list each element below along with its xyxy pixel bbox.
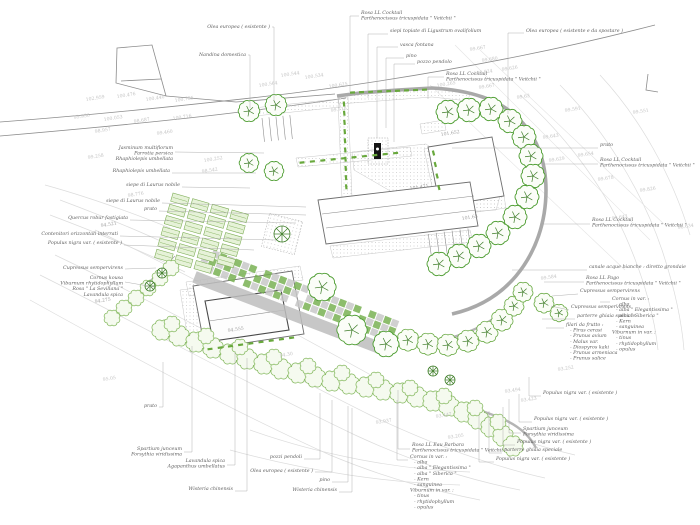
pergola-cell <box>325 311 334 320</box>
elevation-value: 100.735 <box>174 95 194 104</box>
pergola-cell <box>248 264 257 273</box>
pergola-cell <box>383 316 392 325</box>
pergola-cell <box>375 313 384 322</box>
elevation-value: 99.667 <box>469 45 486 53</box>
annotation-label: Rhaphiolepis umbellata <box>112 168 171 174</box>
elevation-value: 94.30 <box>279 351 293 359</box>
annotation-label: pozzo pendolo <box>417 59 452 65</box>
annotation-label: Populus nigra var. ( esistente ) <box>516 438 591 445</box>
annotation-label: Olea europea ( esistente ) <box>207 23 270 30</box>
elevation-value: 93.447 <box>435 412 452 420</box>
elevation-value: 100.440 <box>145 94 165 103</box>
site-plan-drawing: Olea europea ( esistente )Nandina domest… <box>0 0 700 525</box>
elevation-value: 100.252 <box>203 155 223 164</box>
annotation-label: Rosa LL CocktailParthenocissus tricuspid… <box>599 157 695 169</box>
pergola-cell <box>310 305 319 314</box>
hedge-dash <box>350 91 355 93</box>
elevation-value: 99.460 <box>156 129 173 137</box>
annotation-label: Populus nigra var. ( esistente ) <box>495 455 570 462</box>
pergola-cell <box>241 261 250 270</box>
elevation-value: 99.626 <box>501 65 518 73</box>
annotation-label: Jasminum multiflorumParrotia persicaRhap… <box>115 145 174 162</box>
pergola-cell <box>365 318 374 327</box>
leader-line <box>125 268 156 269</box>
annotation-label: filari da frutto :- Pirus cerasi- Prunus… <box>565 322 618 362</box>
elevation-value: 99.591 <box>564 106 581 114</box>
leader-line <box>339 408 352 492</box>
annotation-label: Wisteria chinensis <box>188 486 233 492</box>
elevation-value: 98.542 <box>201 167 218 175</box>
annotation-label: prato <box>144 403 157 409</box>
leader-line <box>332 406 348 482</box>
annotation-label: Cornus in var. :- alba- alba " Elegantis… <box>410 454 471 510</box>
elevation-value: 93.205 <box>447 433 464 441</box>
annotation-label: Lavandula spicaAgapanthus umbellatus <box>167 458 226 470</box>
elevation-value: 99.584 <box>540 274 557 282</box>
pergola-cell <box>345 301 354 310</box>
elevation-value: 100.534 <box>304 72 324 81</box>
hedge-dash <box>386 90 391 92</box>
pergola-cell <box>328 303 337 312</box>
leader-line <box>182 187 250 188</box>
annotation-label: Rosa LL PagoParthenocissus tricuspidata … <box>585 275 681 287</box>
leader-line <box>175 152 264 153</box>
elevation-value: 100.716 <box>172 113 192 122</box>
pergola-cell <box>390 319 399 328</box>
contour-lines <box>30 45 690 500</box>
annotation-label: prato <box>600 142 613 148</box>
annotation-label: pino <box>406 53 417 59</box>
elevation-value: 98.776 <box>127 191 144 199</box>
annotation-label: Populus nigra var. ( esistente ) <box>533 415 608 422</box>
leader-line <box>529 377 541 396</box>
annotation-label: Wisteria chinensis <box>292 487 337 493</box>
elevation-value: 99.258 <box>87 153 104 161</box>
hedge-dash <box>279 338 284 341</box>
elevation-value: 100.564 <box>258 80 278 89</box>
elevation-value: 99.63 <box>516 93 530 101</box>
annotation-label: parterre ghiaia speciale <box>577 313 635 319</box>
pergola-cell <box>320 300 329 309</box>
hedge-dash <box>413 89 418 91</box>
elevation-value: 100.053 <box>103 114 123 123</box>
annotation-label: Contenitori orizzontali interrati <box>41 231 118 237</box>
annotation-label: siepe di Laurus nobile <box>126 182 180 188</box>
elevation-value: 102.959 <box>85 94 105 103</box>
pergola-cell <box>302 302 311 311</box>
elevation-value: 99.629 <box>548 156 565 164</box>
elevation-value: 100.476 <box>116 91 136 100</box>
pergola-cell <box>353 304 362 313</box>
elevation-value: 93.494 <box>504 387 521 395</box>
pergola-cell <box>338 299 347 308</box>
leader-line <box>184 346 192 452</box>
pergola-cell <box>317 308 326 317</box>
elevation-value: 100.625 <box>328 81 348 90</box>
annotation-label: Cornus kousaViburnum rhytidophyllumRosa … <box>60 275 123 298</box>
elevation-value: 94.521 <box>100 221 117 229</box>
annotation-label: Cupressus sempervirens <box>571 304 631 310</box>
annotation-label: parterre ghiaia speciale <box>504 447 562 453</box>
elevation-value: 98.957 <box>94 127 111 135</box>
annotation-label: Spartium junceumForsythia viridissima <box>130 446 182 458</box>
leader-line <box>508 33 524 114</box>
annotation-label: Spartium junceumForsythia viridissima <box>522 426 574 438</box>
elevation-value: 99.654 <box>577 151 594 159</box>
hedge-dash <box>359 91 364 93</box>
annotation-label: Olea europea ( esistente ) <box>250 467 313 474</box>
hedge-dash <box>422 88 427 90</box>
annotation-label: Populus nigra var. ( esistente ) <box>47 239 122 246</box>
pergola-cell <box>213 268 222 277</box>
annotation-label: Populus nigra var. ( esistente ) <box>542 389 617 396</box>
hedge-dash <box>395 90 400 92</box>
annotation-label: pozzi pendoli <box>270 454 303 460</box>
elevation-value: 93.423 <box>520 396 537 404</box>
annotation-label: canale acque bianche : diretto grondaie <box>589 264 686 270</box>
elevation-value: 99.551 <box>632 108 649 116</box>
annotation-label: Quercus robur fastigiata <box>68 215 128 221</box>
elevation-value: 99.826 <box>639 186 656 194</box>
hedge-dash <box>368 91 373 93</box>
leader-line <box>315 400 332 472</box>
annotation-label: vasca fontana <box>400 42 434 48</box>
elevation-value: 100.544 <box>280 70 300 79</box>
hedge-dash <box>289 336 294 339</box>
annotation-label: Cupressus sempervirens <box>580 288 640 294</box>
elevation-value: 99.643 <box>542 133 559 141</box>
annotation-label: siepe di Laurus nobile <box>106 198 160 204</box>
elevation-value: 99.678 <box>597 175 614 183</box>
annotation-label: Rosa LL CocktailParthenocissus tricuspid… <box>360 10 456 22</box>
trees-layer <box>104 94 568 456</box>
well-fountain <box>368 138 388 164</box>
site-plan-canvas: Olea europea ( esistente )Nandina domest… <box>0 0 700 525</box>
leader-line <box>272 27 274 101</box>
elevation-value: 99.667 <box>478 83 495 91</box>
leader-line <box>552 294 578 296</box>
annotation-label: Olea europea ( esistente e da spostare ) <box>526 27 623 34</box>
annotation-label: prato <box>144 206 157 212</box>
pergola-cell <box>368 310 377 319</box>
annotation-label: Rosa LL Eau BarbaraParthenocissus tricus… <box>411 442 507 454</box>
leader-line <box>350 16 359 92</box>
elevation-value: 99.680 <box>481 56 498 64</box>
leader-line <box>368 34 388 98</box>
well-symbol <box>374 143 381 159</box>
annotation-label: siepi topiate di Ligustrum ovalifolium <box>390 28 482 34</box>
annotation-label: Cupressus sempervirens <box>63 265 123 271</box>
elevation-value: 99.956 <box>73 113 90 121</box>
pergola-cell <box>335 306 344 315</box>
leader-line <box>248 55 250 108</box>
hedge-dash <box>377 90 382 92</box>
hedge-dash <box>404 89 409 91</box>
pergola-cell <box>372 320 381 329</box>
annotation-label: pino <box>319 477 330 483</box>
annotation-label: Rosa LL CocktailParthenocissus tricuspid… <box>591 217 687 229</box>
elevation-value: 95.05 <box>102 375 116 383</box>
leader-line <box>159 362 163 407</box>
elevation-value: 93.252 <box>557 365 574 373</box>
annotation-label: Nandina domestica <box>198 52 246 58</box>
elevation-value: 98.687 <box>133 117 150 125</box>
